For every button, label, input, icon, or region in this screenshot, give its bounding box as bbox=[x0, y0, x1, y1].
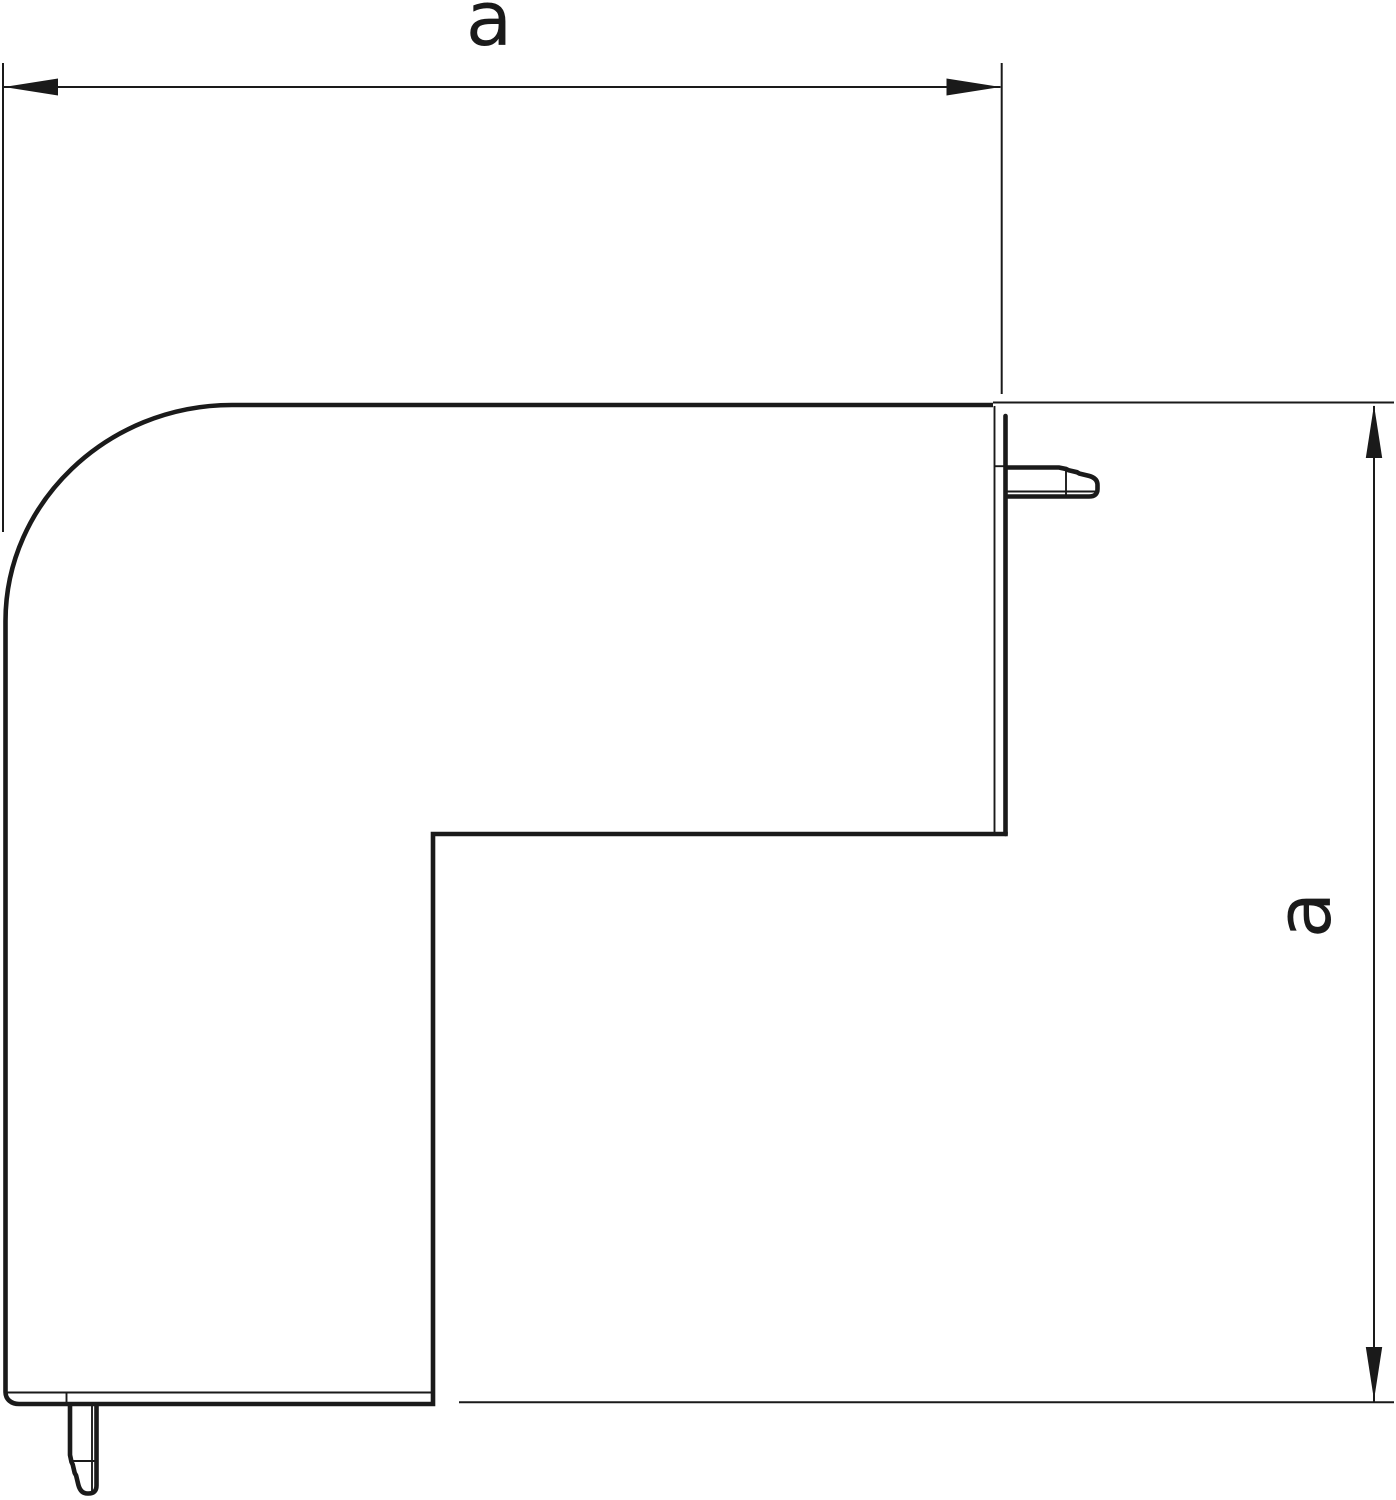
drawing-canvas: a a bbox=[0, 0, 1396, 1500]
height-arrow-up bbox=[1366, 405, 1382, 458]
part-body-outline bbox=[6, 405, 1008, 1404]
width-dimension-label: a bbox=[466, 0, 513, 63]
height-dimension-label: a bbox=[1259, 892, 1348, 939]
width-arrow-left bbox=[4, 79, 58, 96]
height-dimension: a bbox=[459, 403, 1394, 1403]
height-arrow-down bbox=[1366, 1347, 1382, 1400]
width-dimension: a bbox=[3, 0, 1002, 532]
width-arrow-right bbox=[947, 79, 1001, 96]
part-inner-edges bbox=[7, 406, 1097, 1494]
drawing-strokes: a a bbox=[3, 0, 1394, 1494]
corner-cover-technical-drawing: a a bbox=[0, 0, 1396, 1500]
corner-cover-part bbox=[6, 405, 1098, 1494]
